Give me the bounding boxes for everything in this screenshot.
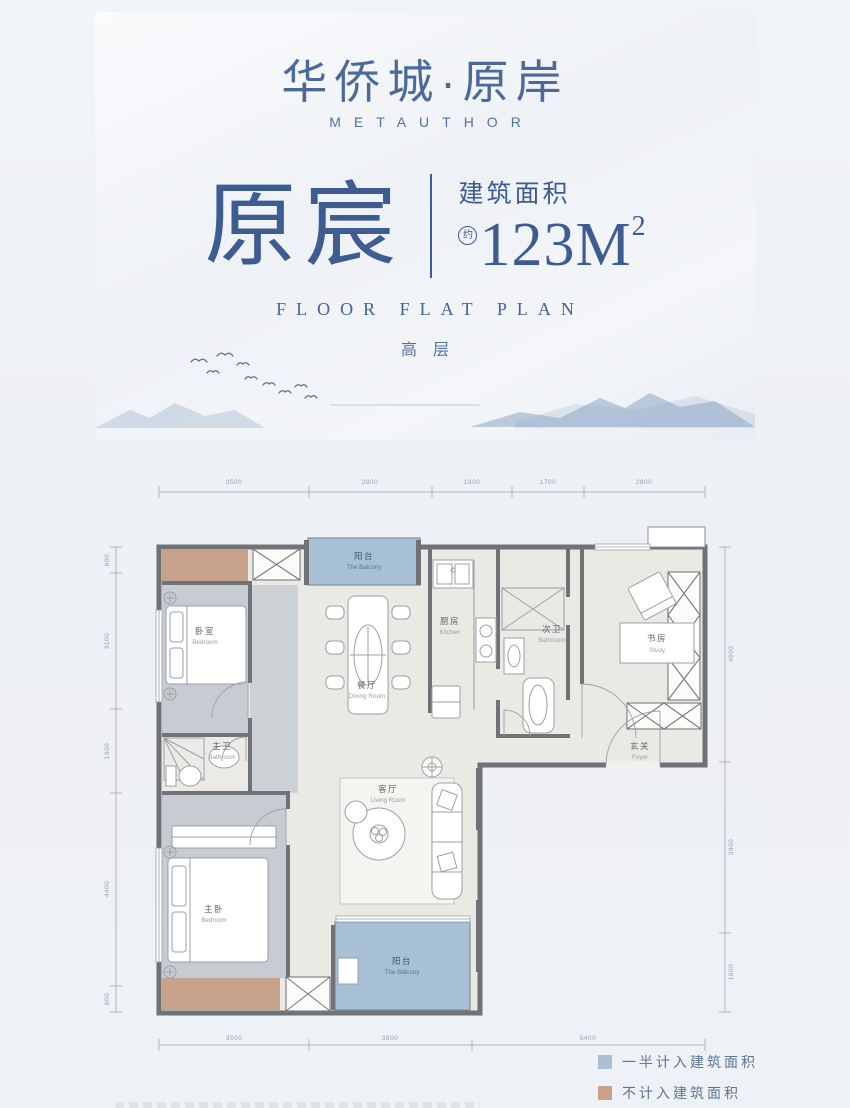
dim-bracket-right (719, 547, 731, 1012)
area-label: 建筑面积 (458, 174, 570, 210)
svg-text:1800: 1800 (728, 964, 735, 980)
svg-text:The Balcony: The Balcony (384, 969, 420, 976)
svg-text:客厅: 客厅 (378, 784, 398, 794)
svg-text:次卫: 次卫 (542, 624, 562, 634)
brand-logo-cn: 华侨城·原岸 (95, 46, 755, 112)
svg-text:600: 600 (104, 993, 111, 1005)
legend-swatch-half-counted (598, 1055, 612, 1069)
svg-text:4400: 4400 (104, 881, 111, 897)
excluded-area-bottom (162, 978, 280, 1010)
area-block: 建筑面积 约 123M 2 (458, 174, 645, 278)
legend-swatch-excluded (598, 1086, 612, 1100)
svg-text:Bedroom: Bedroom (201, 917, 227, 924)
svg-text:600: 600 (104, 554, 111, 566)
dim-labels-bottom: 3500 3800 5400 (226, 1035, 596, 1042)
svg-text:Bedroom: Bedroom (192, 639, 218, 646)
dim-bracket-top (159, 486, 705, 498)
corridor-floor (250, 585, 298, 793)
legend-row-half: 一半计入建筑面积 (598, 1052, 758, 1072)
svg-text:书房: 书房 (647, 633, 667, 643)
header-card: 华侨城·原岸 METAUTHOR 原宸 建筑面积 约 123M 2 FLOOR … (95, 12, 755, 440)
title-block: 原宸 建筑面积 约 123M 2 (95, 174, 755, 278)
svg-text:1700: 1700 (540, 479, 556, 486)
svg-text:2800: 2800 (636, 479, 652, 486)
svg-text:卧室: 卧室 (195, 626, 215, 636)
title-divider (430, 174, 432, 278)
svg-text:Kitchen: Kitchen (439, 629, 461, 636)
svg-text:1900: 1900 (104, 743, 111, 759)
svg-text:Living Room: Living Room (371, 797, 406, 804)
svg-text:阳台: 阳台 (392, 956, 412, 966)
dim-labels-top: 3500 2800 1900 1700 2800 (226, 479, 652, 486)
svg-text:Dining Room: Dining Room (349, 693, 385, 700)
svg-text:主卫: 主卫 (212, 741, 232, 751)
svg-text:1900: 1900 (464, 479, 480, 486)
floor-type: 高层 (95, 336, 755, 360)
svg-text:3500: 3500 (226, 479, 242, 486)
svg-text:5400: 5400 (580, 1035, 596, 1042)
svg-text:3900: 3900 (728, 839, 735, 855)
flyer-page: 华侨城·原岸 METAUTHOR 原宸 建筑面积 约 123M 2 FLOOR … (0, 0, 850, 1108)
dim-bracket-left (110, 547, 122, 1012)
svg-text:The Balcony: The Balcony (346, 564, 382, 571)
floorplan: 3500 2800 1900 1700 2800 3500 3800 5400 … (100, 460, 780, 1085)
svg-text:3800: 3800 (382, 1035, 398, 1042)
floorplan-svg: 3500 2800 1900 1700 2800 3500 3800 5400 … (100, 460, 780, 1080)
cutoff-text-strip (115, 1102, 480, 1108)
dim-labels-right: 4900 3900 1800 (728, 646, 735, 980)
legend-label-half-counted: 一半计入建筑面积 (622, 1052, 758, 1072)
svg-text:4900: 4900 (728, 646, 735, 662)
area-superscript: 2 (632, 212, 646, 242)
svg-text:Foyer: Foyer (632, 754, 648, 761)
entry-opening (606, 761, 660, 769)
legend: 一半计入建筑面积 不计入建筑面积 (598, 1052, 758, 1103)
svg-text:3500: 3500 (226, 1035, 242, 1042)
legend-row-excluded: 不计入建筑面积 (598, 1083, 758, 1103)
svg-text:餐厅: 餐厅 (357, 680, 377, 690)
subtitle-en: FLOOR FLAT PLAN (95, 299, 755, 320)
plan-name: 原宸 (204, 176, 404, 276)
svg-text:2800: 2800 (362, 479, 378, 486)
area-value: 123M (479, 212, 631, 278)
approx-badge: 约 (458, 226, 477, 245)
svg-text:厨房: 厨房 (440, 616, 460, 626)
svg-text:玄关: 玄关 (630, 741, 650, 751)
top-right-notch (648, 527, 705, 547)
svg-text:Bathroom: Bathroom (208, 754, 235, 761)
balcony-top-area (308, 538, 420, 585)
svg-text:Study: Study (649, 647, 666, 654)
svg-text:Bathroom: Bathroom (538, 637, 565, 644)
dim-labels-left: 600 3100 1900 4400 600 (104, 554, 111, 1005)
svg-text:3100: 3100 (104, 633, 111, 649)
legend-label-excluded: 不计入建筑面积 (622, 1083, 741, 1103)
svg-text:阳台: 阳台 (354, 551, 374, 561)
svg-text:主卧: 主卧 (204, 904, 224, 914)
excluded-area-top (162, 549, 248, 581)
brand-name-en: METAUTHOR (95, 114, 755, 130)
